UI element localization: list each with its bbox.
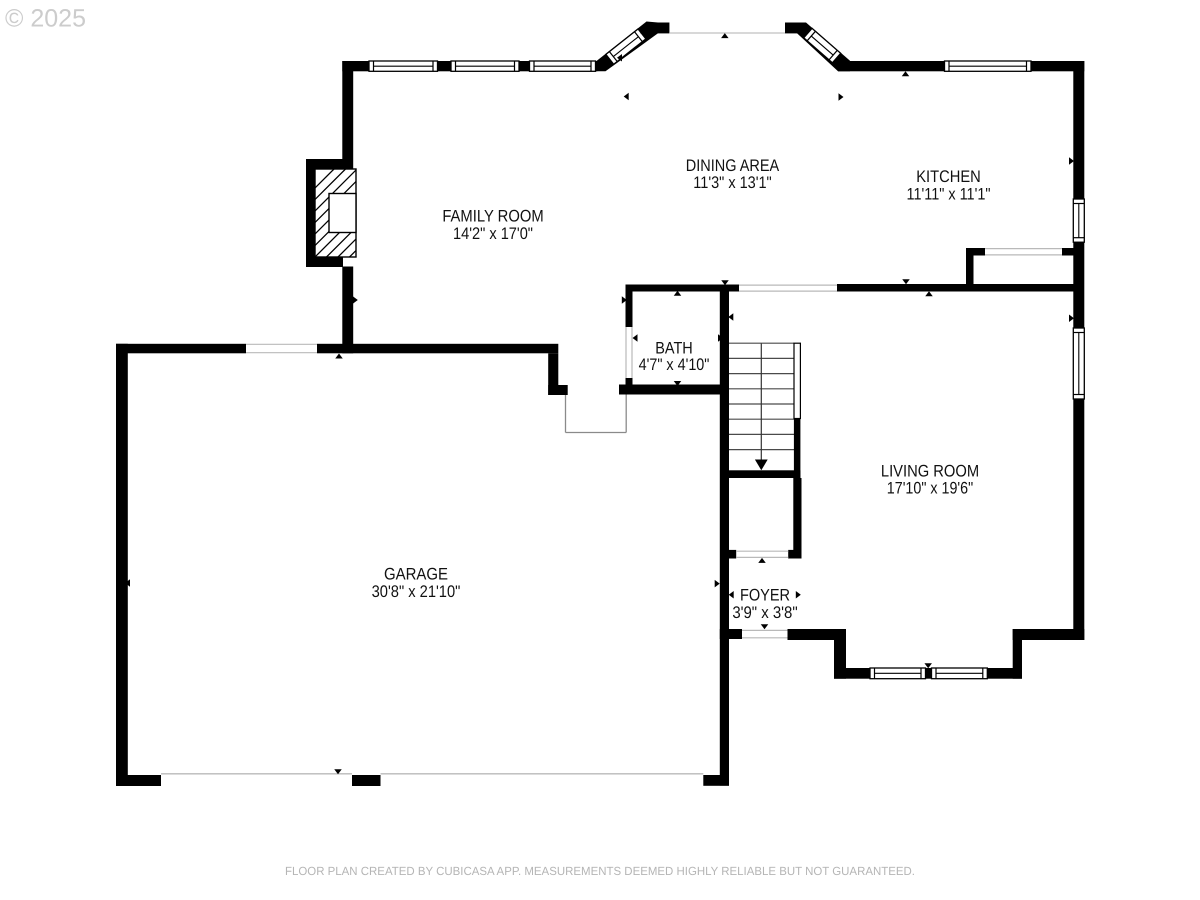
svg-text:© 2025: © 2025 [5,5,86,33]
svg-text:GARAGE: GARAGE [384,565,448,584]
svg-text:FLOOR PLAN CREATED BY CUBICASA: FLOOR PLAN CREATED BY CUBICASA APP. MEAS… [285,864,915,878]
svg-text:FAMILY ROOM: FAMILY ROOM [442,207,543,226]
svg-text:4'7" x 4'10": 4'7" x 4'10" [639,355,710,374]
svg-text:KITCHEN: KITCHEN [916,167,981,186]
svg-text:11'3" x 13'1": 11'3" x 13'1" [693,173,771,192]
svg-text:FOYER: FOYER [740,586,790,605]
svg-text:14'2" x 17'0": 14'2" x 17'0" [453,224,533,243]
svg-text:3'9" x 3'8": 3'9" x 3'8" [732,603,797,622]
svg-text:11'11" x 11'1": 11'11" x 11'1" [907,185,991,204]
svg-text:17'10" x 19'6": 17'10" x 19'6" [887,478,973,497]
svg-text:30'8" x 21'10": 30'8" x 21'10" [372,582,461,601]
